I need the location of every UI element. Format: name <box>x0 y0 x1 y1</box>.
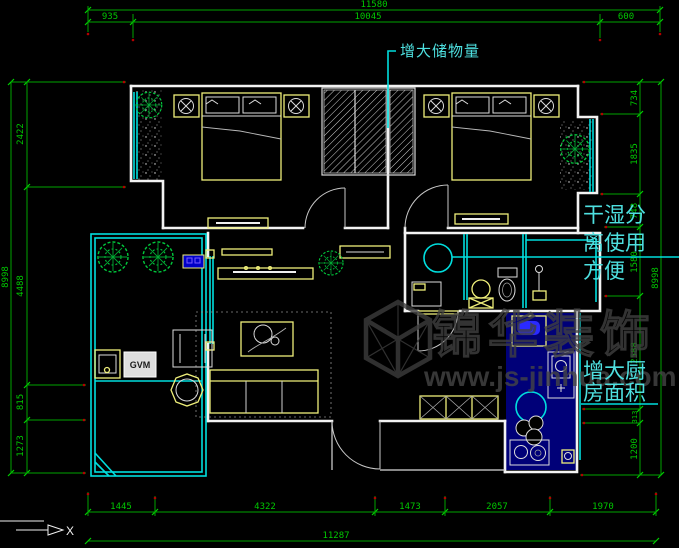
dim-left-4488: 4488 <box>16 275 26 297</box>
dim-top-935: 935 <box>102 12 118 22</box>
balcony-window <box>206 250 214 350</box>
kitchen-line2: 房面积 <box>583 382 646 405</box>
dim-top-600: 600 <box>618 12 634 22</box>
dim-bottom-1473: 1473 <box>399 502 421 512</box>
dim-bottom-2057: 2057 <box>486 502 508 512</box>
dresser-tv-1 <box>208 218 268 228</box>
x-axis-arrow-icon <box>48 525 63 535</box>
toilet <box>498 268 517 301</box>
vanity-mirror <box>469 280 493 308</box>
drywet-line1: 干湿分 <box>583 204 646 227</box>
drywet-line2: 离使用 <box>583 232 646 255</box>
dim-right-total: 8998 <box>651 267 661 289</box>
dim-left-2422: 2422 <box>16 123 26 145</box>
door-entry <box>332 421 380 469</box>
drywet-note: 干湿分 离使用 方便 <box>452 204 679 283</box>
dim-right-313: 313 <box>631 411 639 424</box>
dim-left-1273: 1273 <box>16 435 26 457</box>
dim-left-815: 815 <box>16 394 26 410</box>
bathroom <box>412 234 596 314</box>
dim-right-1835: 1835 <box>630 143 640 165</box>
side-table <box>171 374 203 406</box>
shower-fixture <box>533 266 546 301</box>
dim-right-1200: 1200 <box>630 438 640 460</box>
dimensions-bottom: 1445 4322 1473 2057 1970 11287 <box>85 492 659 544</box>
dimensions-left: 2422 4488 815 1273 8998 <box>1 79 126 476</box>
rug-outline <box>196 312 331 417</box>
dimensions-top: 11580 935 10045 600 <box>85 0 663 41</box>
axis-label: X <box>66 524 74 538</box>
floorplan-drawing: 11580 935 10045 600 1445 4322 1473 2057 … <box>0 0 679 548</box>
bedroom-1 <box>134 90 309 228</box>
axis-marker: X <box>0 521 74 538</box>
dim-right-734: 734 <box>630 90 640 106</box>
nightstand-right <box>284 95 309 117</box>
plant-icon <box>319 251 343 275</box>
closet-bedroom2 <box>390 90 413 173</box>
drywet-line3: 方便 <box>583 260 625 283</box>
bed-2 <box>452 93 531 180</box>
coffee-table <box>241 322 293 356</box>
dim-top-total: 11580 <box>360 0 387 10</box>
door-bedroom-2 <box>405 185 448 228</box>
dim-left-total: 8998 <box>1 266 11 288</box>
balcony: GVM <box>91 234 206 476</box>
storage-note-text: 增大储物量 <box>400 43 480 60</box>
nightstand-right-2 <box>534 95 559 117</box>
washing-machine-box: GVM <box>124 352 156 377</box>
plant-icon <box>143 242 173 272</box>
living-room <box>171 246 390 417</box>
nightstand-left <box>174 95 199 117</box>
dim-bottom-1970: 1970 <box>592 502 614 512</box>
tv-wall-unit <box>218 249 313 279</box>
dresser-tv-2 <box>455 214 508 224</box>
bedroom-2 <box>424 93 593 224</box>
hall-cabinet <box>340 246 390 258</box>
bathroom-washer <box>412 282 441 306</box>
water-heater <box>95 350 120 378</box>
nightstand-left-2 <box>424 95 449 117</box>
kitchen-line1: 增大厨 <box>583 360 646 383</box>
cad-floorplan-screenshot: 11580 935 10045 600 1445 4322 1473 2057 … <box>0 0 679 548</box>
dining-table <box>420 396 498 419</box>
plant-icon <box>98 242 128 272</box>
watermark-logo-cube <box>366 302 430 376</box>
dim-bottom-4322: 4322 <box>254 502 276 512</box>
watermark-brand: 锦华装饰 <box>432 307 656 363</box>
appliance-label: GVM <box>130 360 151 370</box>
sofa <box>210 370 318 413</box>
floor-plan: GVM <box>91 86 600 476</box>
wash-basin <box>424 244 452 272</box>
dim-bottom-total: 11287 <box>322 531 349 541</box>
shoe-mat <box>183 255 204 268</box>
wardrobe-closets <box>322 88 415 175</box>
door-bedroom-1 <box>305 188 345 228</box>
dim-bottom-1445: 1445 <box>110 502 132 512</box>
dim-top-10045: 10045 <box>354 12 381 22</box>
bed-1 <box>202 93 281 180</box>
